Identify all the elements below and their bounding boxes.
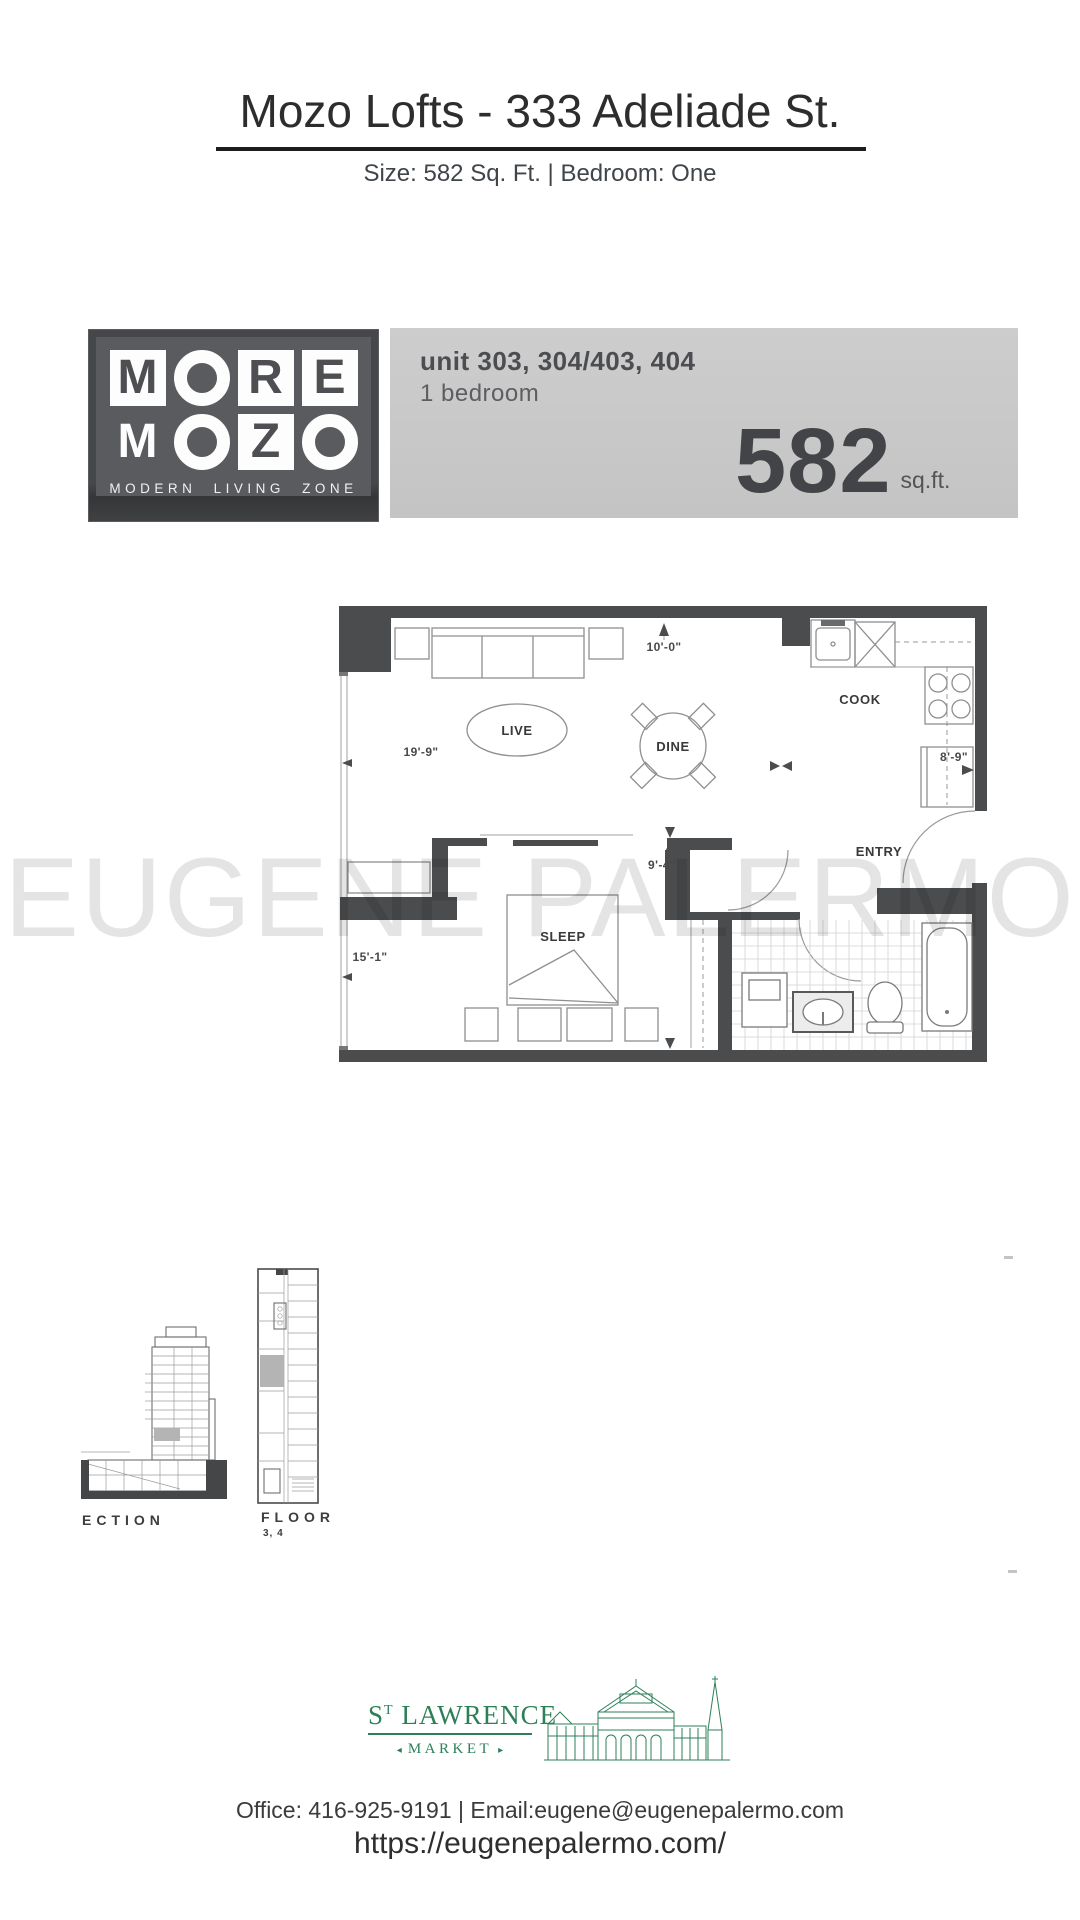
market-name-line: ST LAWRENCE: [368, 1700, 532, 1731]
page-subtitle: Size: 582 Sq. Ft. | Bedroom: One: [0, 160, 1080, 188]
cook-label: COOK: [839, 692, 880, 707]
title-underline: [216, 147, 866, 151]
kitchen-sink: [811, 620, 855, 667]
logo-letter-m2: M: [110, 414, 166, 470]
dim-arrow-up-icon: [659, 623, 669, 636]
floor-strip-diagram: FLOOR 3, 4: [258, 1269, 330, 1539]
more-mozo-logo: M O R E M O Z O MODERN LIVING ZONE: [88, 329, 379, 522]
living-dim: 19'-9": [404, 745, 439, 759]
logo-tagline: MODERN LIVING ZONE: [96, 481, 371, 496]
st-lawrence-market-illustration: [540, 1674, 735, 1779]
floor-plan: COOK 8'-9" 10'-0" LIVE 19'-9" DINE: [337, 600, 989, 1065]
market-rule: [368, 1733, 532, 1735]
section-label: ECTION: [82, 1512, 165, 1528]
dine-label: DINE: [656, 739, 689, 754]
floor-sublabel: 3, 4: [263, 1528, 284, 1539]
stove: [925, 667, 973, 724]
page-title: Mozo Lofts - 333 Adeliade St.: [0, 84, 1080, 138]
wall-right-upper: [975, 606, 987, 811]
bedroom-count: 1 bedroom: [420, 380, 539, 408]
live-label: LIVE: [501, 723, 532, 738]
scan-artifact: [1008, 1570, 1017, 1573]
logo-letter-e: E: [302, 350, 358, 406]
area-figure: 582 sq.ft.: [735, 426, 950, 498]
logo-letter-r: R: [238, 350, 294, 406]
kitchen-dim: 8'-9": [940, 750, 968, 764]
logo-row-mozo: M O Z O: [96, 406, 371, 470]
market-sub-line: ◂MARKET▸: [368, 1741, 532, 1758]
unit-numbers: unit 303, 304/403, 404: [420, 346, 696, 377]
washer: [742, 973, 787, 1027]
logo-letter-o2-ring: O: [174, 414, 230, 470]
top-dim: 10'-0": [647, 640, 682, 654]
logo-letter-o3-ring: O: [302, 414, 358, 470]
dim-arrow-down2-icon: [665, 1038, 675, 1049]
wall-corner-block: [339, 606, 391, 672]
logo-letter-o-ring: O: [174, 350, 230, 406]
opening-arrow-left-icon: [782, 761, 792, 771]
wall-bottom: [339, 1050, 987, 1062]
sofa: [395, 628, 623, 678]
logo-panel: M O R E M O Z O MODERN LIVING ZONE: [96, 337, 371, 496]
logo-letter-z: Z: [238, 414, 294, 470]
opening-arrow-right-icon: [770, 761, 780, 771]
dim-arrow-right-icon: [962, 765, 974, 775]
watermark: EUGENE PALERMO: [0, 842, 1080, 954]
left-arrow-icon: ◂: [391, 1745, 408, 1756]
right-arrow-icon: ▸: [492, 1745, 509, 1756]
wall-top: [339, 606, 987, 618]
st-lawrence-market-wordmark: ST LAWRENCE ◂MARKET▸: [368, 1700, 532, 1758]
logo-row-more: M O R E: [96, 337, 371, 406]
floor-label: FLOOR: [261, 1509, 330, 1525]
toilet: [867, 982, 903, 1033]
area-value: 582: [735, 426, 892, 498]
building-diagrams: ECTION FLOOR 3, 4: [78, 1263, 330, 1545]
logo-letter-m: M: [110, 350, 166, 406]
kitchen-stub-wall: [782, 606, 810, 646]
contact-line: Office: 416-925-9191 | Email:eugene@euge…: [0, 1797, 1080, 1824]
storage-cubes: [465, 1008, 658, 1041]
vanity-sink: [793, 992, 853, 1032]
website-link[interactable]: https://eugenepalermo.com/: [0, 1827, 1080, 1861]
section-diagram: ECTION: [81, 1327, 227, 1528]
unit-banner: unit 303, 304/403, 404 1 bedroom 582 sq.…: [390, 328, 1018, 518]
area-unit: sq.ft.: [901, 467, 951, 494]
scan-artifact: [1004, 1256, 1013, 1259]
